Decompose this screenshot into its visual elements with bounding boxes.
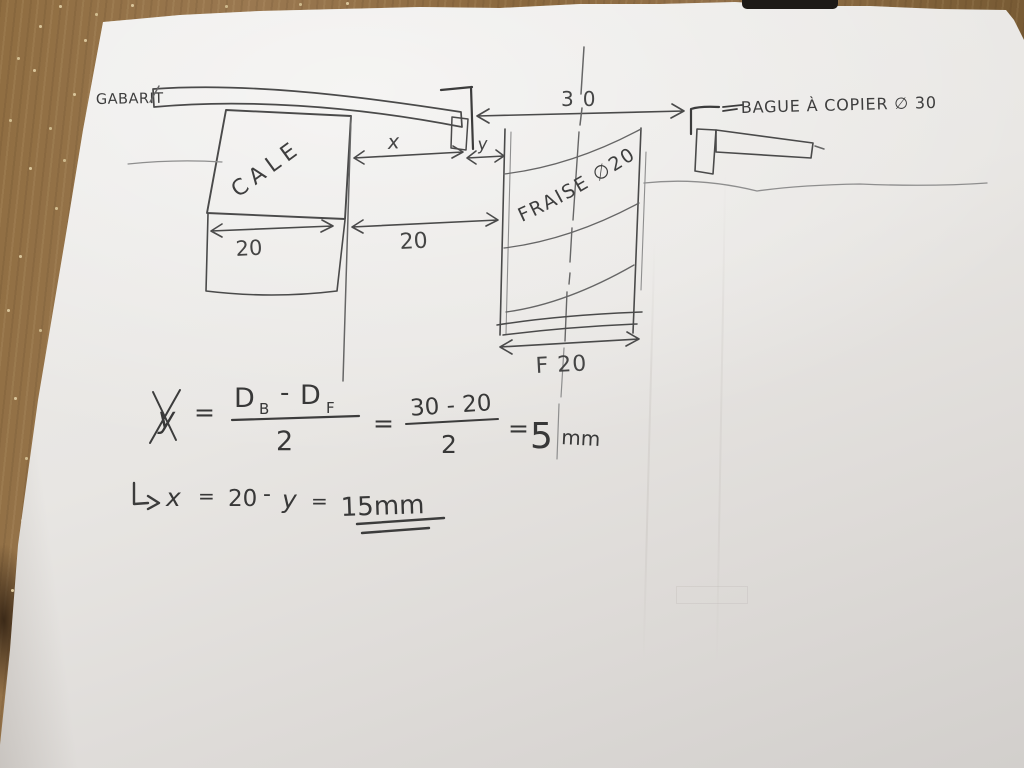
photo-of-hand-drawn-sketch: { "sketch": { "labels": { "gabarit": "GA… [0,0,1024,768]
formula1-num-d1-sub: B [259,400,269,418]
formula1-unit: mm [561,425,601,451]
formula1-num-d2-sub: F [326,399,335,417]
dim-x-arrow [354,146,463,164]
formula2-result: 15mm [340,490,425,523]
fraise-right-edge-double [641,152,646,290]
center-line-mid [565,132,579,341]
formula1-fraction-bar [232,416,359,420]
formula2-a: 20 [228,486,257,512]
formula1-eq3: = [508,414,529,443]
gabarit-template-bar [153,87,462,127]
fraise-left-edge [500,129,505,335]
return-arrow-icon [134,483,159,509]
formula1-den2: 2 [441,430,457,459]
dim-cale-width-arrow [211,220,333,237]
formula1-den: 2 [276,426,293,457]
formula1-num-d1: D [234,383,255,414]
dim-y-value: y [476,134,489,155]
bague-flange-section [716,130,813,158]
bague-label: BAGUE À COPIER ∅ 30 [741,93,937,117]
template-edge-hatch [451,117,468,150]
formula1-num-d2: D [300,380,321,411]
bague-flange-tick [815,146,824,149]
formula2-lhs: x [165,483,181,512]
fraise-left-edge-double [506,132,511,334]
surface-line-right [644,181,987,191]
formula2-b: y [281,485,298,514]
formula2-minus: - [263,482,271,507]
pencil-sketch: GABARIT CALE 20 20 x y 30 FRAISE ∅20 F 2… [0,0,1024,768]
formula1-lhs-strike [150,390,180,443]
formula2-eq: = [198,484,215,508]
dim-f20-value: F 20 [535,351,588,379]
formula-y: y = D B - D F 2 = 30 - 20 2 = 5 mm [150,378,601,459]
surface-line-left [128,161,222,164]
formula1-eq2: = [373,409,394,438]
dim-30-value: 30 [561,87,604,111]
cale-right-edge-extension [343,117,351,381]
bague-label-connector [723,105,742,111]
cale-label: CALE [227,135,307,203]
formula1-result: 5 [530,416,553,457]
formula-x: x = 20 - y = 15mm [134,482,444,533]
fraise-bottom-edge [497,312,642,335]
formula1-minus: - [280,378,289,408]
dim-f20-arrow [500,332,639,354]
formula2-eq2: = [311,489,328,513]
dim-offset-value: 20 [399,229,428,255]
formula1-eq: = [194,398,215,427]
dim-x-value: x [386,129,401,154]
bague-vertical-section [695,129,716,174]
dim-cale-width-value: 20 [235,236,263,261]
formula1-num2: 30 - 20 [409,390,492,422]
